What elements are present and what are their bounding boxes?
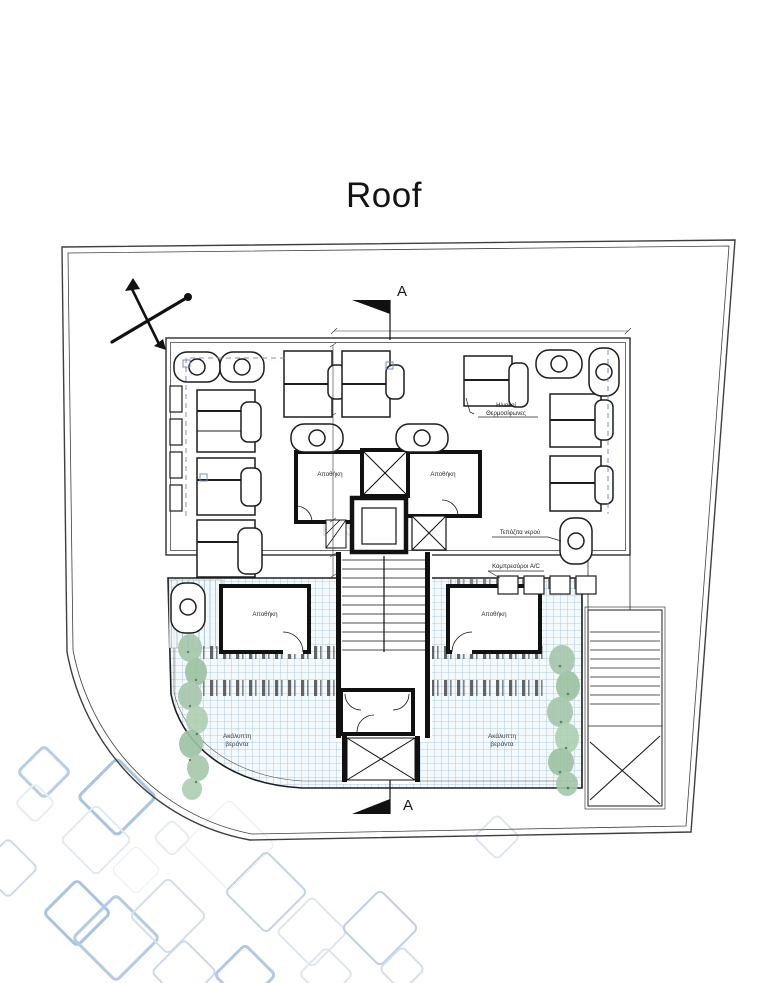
- solar-unit: [197, 520, 262, 577]
- solar-unit: [550, 394, 613, 447]
- ac-compressors-label: Κομπρεσόροι A/C: [492, 563, 540, 570]
- terrace-right-label-line2: βεράντα: [490, 740, 513, 748]
- right-stair: [585, 607, 665, 809]
- section-label-bottom: A: [403, 797, 413, 814]
- solar-heaters-label-line2: Θερμοσίφωνες: [486, 411, 526, 417]
- terrace-left-label-line2: βεράντα: [225, 740, 248, 748]
- ac-unit: [524, 576, 544, 594]
- room-label-storage-lower-left: Αποθήκη: [252, 611, 278, 618]
- floor-plan-drawing: KTIS ESTATE: [0, 0, 768, 983]
- solar-unit: [197, 390, 261, 452]
- room-label-storage-lower-right: Αποθήκη: [481, 611, 507, 618]
- water-tanks-label: Τεπόζιτα νερού: [500, 529, 540, 536]
- solar-unit: [197, 458, 261, 515]
- solar-unit: [464, 356, 528, 407]
- section-label-top: A: [397, 283, 407, 300]
- terrace-right-label-line1: Ακάλυπτη: [488, 732, 517, 740]
- ac-unit: [576, 576, 596, 594]
- roof-plan-sheet: Roof: [0, 0, 768, 983]
- room-label-storage-upper-left: Αποθήκη: [317, 471, 343, 478]
- ac-unit: [550, 576, 570, 594]
- ac-unit: [498, 576, 518, 594]
- room-label-storage-upper-right: Αποθήκη: [430, 471, 456, 478]
- terrace-left-label-line1: Ακάλυπτη: [223, 732, 252, 740]
- solar-heaters-label-line1: Ηλιακοί: [496, 403, 516, 409]
